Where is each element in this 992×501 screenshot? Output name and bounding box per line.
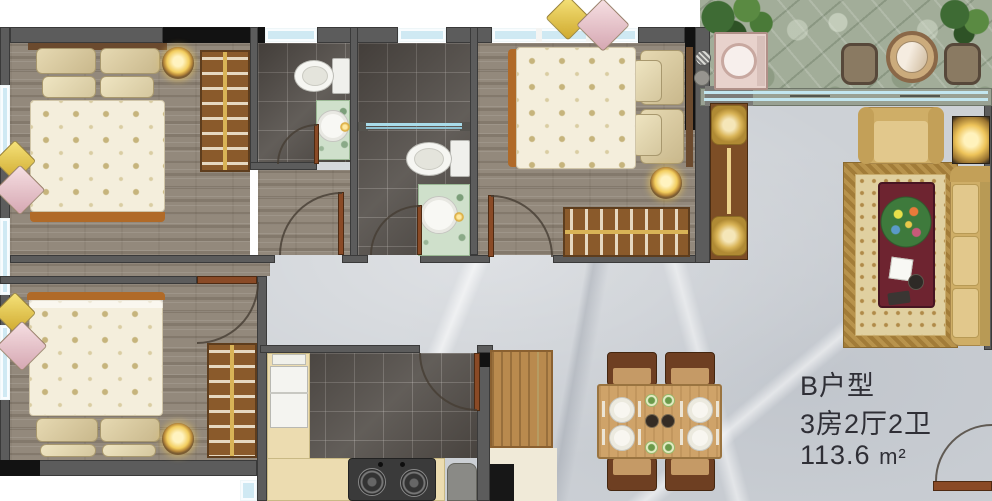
entry-doormat	[490, 464, 514, 501]
side-dish	[645, 394, 658, 407]
unit-name-text: B户型	[800, 371, 875, 401]
armchair-arm	[858, 107, 874, 164]
cutlery	[716, 429, 719, 445]
layout-spec-label: 3房2厅2卫	[800, 402, 932, 441]
sliding-door-frame-tick	[790, 95, 830, 97]
plant-northeast	[930, 0, 992, 48]
layout-spec-text: 3房2厅2卫	[800, 409, 932, 439]
shower-glass-partition	[366, 123, 462, 126]
window-bottom-left	[240, 480, 257, 501]
side-dish	[662, 394, 675, 407]
wall-top-3	[446, 27, 492, 43]
washing-machine-drum	[721, 43, 757, 79]
serving-bowl	[661, 414, 675, 428]
tv-console-gold-cap	[711, 105, 747, 145]
washing-machine-panel	[757, 36, 765, 86]
bed-3-pillow	[102, 444, 156, 457]
bed-3-frame-top	[27, 292, 165, 300]
wall-kitchen-north	[260, 345, 420, 353]
bed-2-pillow	[632, 114, 662, 156]
wardrobe-bedroom-1	[200, 50, 250, 172]
window-mullion	[536, 28, 542, 42]
cutlery	[602, 429, 605, 445]
floor-drain	[695, 50, 711, 66]
stove-knob	[400, 462, 405, 467]
sofa-cushion	[952, 236, 979, 286]
wall-south-seg-2	[342, 255, 368, 263]
serving-bowl	[645, 414, 659, 428]
stove-burner	[358, 468, 386, 496]
wall-bedroom3-kitchen-west	[257, 276, 267, 501]
main-entry-door-leaf	[933, 481, 992, 491]
stove-burner	[400, 469, 428, 497]
place-setting-plate	[687, 397, 713, 423]
area-label: 113.6 m²	[800, 440, 907, 471]
nightstand-lamp-bedroom-1	[162, 47, 194, 79]
wall-bedroom3-south-black	[0, 460, 40, 476]
wall-bathroom2-bedroom2	[470, 27, 478, 255]
unit-name-label: B户型	[800, 364, 875, 403]
cutlery	[602, 401, 605, 417]
corner-lamp-table	[952, 116, 990, 164]
dining-chair-seat	[613, 368, 651, 384]
flower-bouquet	[880, 196, 932, 248]
sofa-back	[980, 166, 990, 346]
bed-2-pillow	[632, 60, 662, 102]
bed-3-pillow	[36, 418, 98, 442]
balcony-chair	[841, 43, 878, 85]
toilet-seat-bathroom-2	[414, 148, 444, 170]
kitchen-basin-gray	[447, 463, 477, 501]
wardrobe-bedroom-3	[207, 343, 257, 458]
armchair-seat	[874, 121, 928, 162]
stove-knob	[378, 462, 383, 467]
cutlery	[638, 429, 641, 445]
bed-2-headboard	[686, 47, 693, 167]
faucet-bathroom-2	[454, 212, 464, 222]
faucet-bathroom-1	[340, 122, 350, 132]
dining-chair-seat	[671, 459, 709, 475]
bed-3-pillow	[40, 444, 96, 457]
tv-console-handle	[727, 148, 731, 214]
bed-3-duvet	[29, 300, 163, 416]
side-dish	[645, 441, 658, 454]
bed-1-pillow	[42, 76, 96, 98]
sliding-door-frame-tick	[900, 95, 940, 97]
sliding-door-glass-line	[704, 91, 988, 94]
area-value-text: 113.6	[800, 440, 871, 470]
cutlery	[680, 429, 683, 445]
toilet-tank-bathroom-2	[450, 140, 470, 177]
wall-bedroom1-bathroom1	[250, 27, 258, 170]
toilet-tank-bathroom-1	[332, 58, 350, 94]
place-setting-plate	[687, 425, 713, 451]
side-dish	[662, 441, 675, 454]
bed-1-footboard	[30, 212, 165, 222]
corridor-wood-floor	[10, 263, 270, 276]
window-bathroom-2	[398, 28, 446, 42]
refrigerator-door-line	[270, 392, 308, 394]
wall-top-4	[638, 27, 685, 43]
balcony-chair	[944, 43, 981, 85]
bowl-on-table	[908, 274, 924, 290]
sofa-armrest	[950, 166, 990, 182]
cutlery	[638, 401, 641, 417]
bed-1-pillow	[100, 48, 160, 74]
bed-3-sheet-fold	[29, 300, 163, 308]
nightstand-lamp-bedroom-2	[650, 167, 682, 199]
armchair-arm	[928, 107, 944, 164]
wall-bedroom3-north	[0, 276, 197, 284]
wall-south-seg-3	[420, 255, 490, 263]
tv-console-gold-cap	[711, 216, 747, 256]
window-bathroom-1	[265, 28, 317, 42]
shoe-cabinet	[490, 350, 553, 448]
bed-1-pillow	[36, 48, 96, 74]
dining-chair-seat	[613, 459, 651, 475]
sink-basin-bathroom-2	[420, 196, 458, 234]
wall-top-1	[10, 27, 163, 43]
cutlery	[716, 401, 719, 417]
sofa-cushion	[952, 184, 979, 234]
place-setting-plate	[609, 425, 635, 451]
bed-3-pillow	[100, 418, 160, 442]
balcony-table-top	[896, 41, 928, 73]
dining-chair-seat	[671, 368, 709, 384]
wardrobe-bedroom-2	[563, 207, 690, 257]
wall-bathroom1-bathroom2	[350, 27, 358, 263]
exterior-strip-bottom-left	[0, 476, 257, 501]
wall-south-seg-1	[10, 255, 275, 263]
kitchen-sink	[272, 354, 306, 365]
area-unit-text: m²	[879, 444, 907, 469]
bed-2-footboard	[508, 49, 516, 167]
floor-plan: B户型 3房2厅2卫 113.6 m²	[0, 0, 992, 501]
balcony-stool	[694, 70, 710, 86]
bed-2-duvet	[516, 47, 636, 169]
bed-1-duvet	[30, 100, 165, 212]
shower-glass-partition	[366, 127, 462, 129]
toilet-seat-bathroom-1	[302, 66, 328, 86]
sofa-cushion	[952, 288, 979, 338]
sliding-door-glass-line	[704, 98, 988, 101]
cutlery	[680, 401, 683, 417]
nightstand-lamp-bedroom-3	[162, 423, 194, 455]
refrigerator	[270, 366, 308, 428]
place-setting-plate	[609, 397, 635, 423]
bed-1-pillow	[100, 76, 154, 98]
